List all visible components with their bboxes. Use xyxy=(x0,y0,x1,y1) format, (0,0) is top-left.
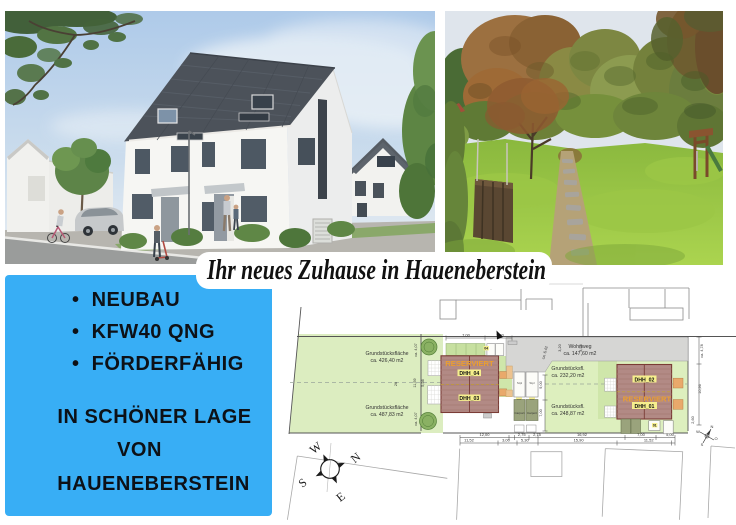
svg-text:DHH_04: DHH_04 xyxy=(459,371,479,377)
svg-text:16,92: 16,92 xyxy=(577,432,588,437)
svg-text:RESERVIERT: RESERVIERT xyxy=(445,359,494,368)
svg-text:01: 01 xyxy=(653,424,657,428)
svg-text:ca. 248,87 m2: ca. 248,87 m2 xyxy=(552,411,585,417)
svg-text:3,20: 3,20 xyxy=(558,344,562,351)
svg-text:2,60: 2,60 xyxy=(691,416,695,423)
svg-text:W: W xyxy=(696,429,700,434)
svg-text:5,30: 5,30 xyxy=(521,438,530,443)
svg-text:3,55: 3,55 xyxy=(579,344,583,351)
svg-text:DHH_02: DHH_02 xyxy=(635,377,655,383)
svg-text:Grundstücksfl.: Grundstücksfl. xyxy=(551,366,584,372)
svg-text:O: O xyxy=(714,436,717,441)
svg-text:Grundstücksfläche: Grundstücksfläche xyxy=(366,351,409,357)
svg-text:12,00: 12,00 xyxy=(479,432,490,437)
svg-text:11,52: 11,52 xyxy=(464,438,474,443)
svg-text:ca. 4,07: ca. 4,07 xyxy=(414,343,418,357)
svg-text:11,52: 11,52 xyxy=(644,438,654,443)
svg-text:3,00: 3,00 xyxy=(502,438,511,443)
svg-text:ca. 487,83 m2: ca. 487,83 m2 xyxy=(371,412,404,418)
svg-text:2,75: 2,75 xyxy=(533,432,542,437)
svg-text:Grundstücksfläche: Grundstücksfläche xyxy=(366,405,409,411)
svg-text:N: N xyxy=(711,424,714,429)
svg-text:04: 04 xyxy=(484,347,488,351)
svg-text:7,00: 7,00 xyxy=(462,333,471,338)
svg-text:5,00: 5,00 xyxy=(666,432,675,437)
svg-text:7,00: 7,00 xyxy=(637,432,646,437)
svg-text:DHH_03: DHH_03 xyxy=(459,396,479,402)
svg-text:ca. 4,07: ca. 4,07 xyxy=(414,412,418,426)
svg-text:11,59: 11,59 xyxy=(413,378,417,387)
svg-text:S: S xyxy=(701,442,704,447)
svg-text:ca. 4,78: ca. 4,78 xyxy=(700,344,704,358)
svg-text:ca. 426,40 m2: ca. 426,40 m2 xyxy=(371,358,404,364)
svg-text:2,75: 2,75 xyxy=(518,432,527,437)
svg-text:Carport: Carport xyxy=(527,411,537,415)
svg-text:DHH_01: DHH_01 xyxy=(635,404,655,410)
svg-text:10,96: 10,96 xyxy=(698,384,702,394)
svg-text:7,00: 7,00 xyxy=(539,409,543,416)
svg-text:26: 26 xyxy=(394,382,398,386)
svg-text:Carport: Carport xyxy=(514,411,524,415)
svg-text:5,56: 5,56 xyxy=(421,379,425,386)
svg-text:Stpl: Stpl xyxy=(529,381,535,385)
svg-text:Grundstücksfl.: Grundstücksfl. xyxy=(551,404,584,410)
svg-text:ca. 232,20 m2: ca. 232,20 m2 xyxy=(552,373,585,379)
svg-text:15,90: 15,90 xyxy=(574,438,585,443)
svg-text:9,00: 9,00 xyxy=(539,381,543,388)
svg-text:Stpl: Stpl xyxy=(517,381,523,385)
